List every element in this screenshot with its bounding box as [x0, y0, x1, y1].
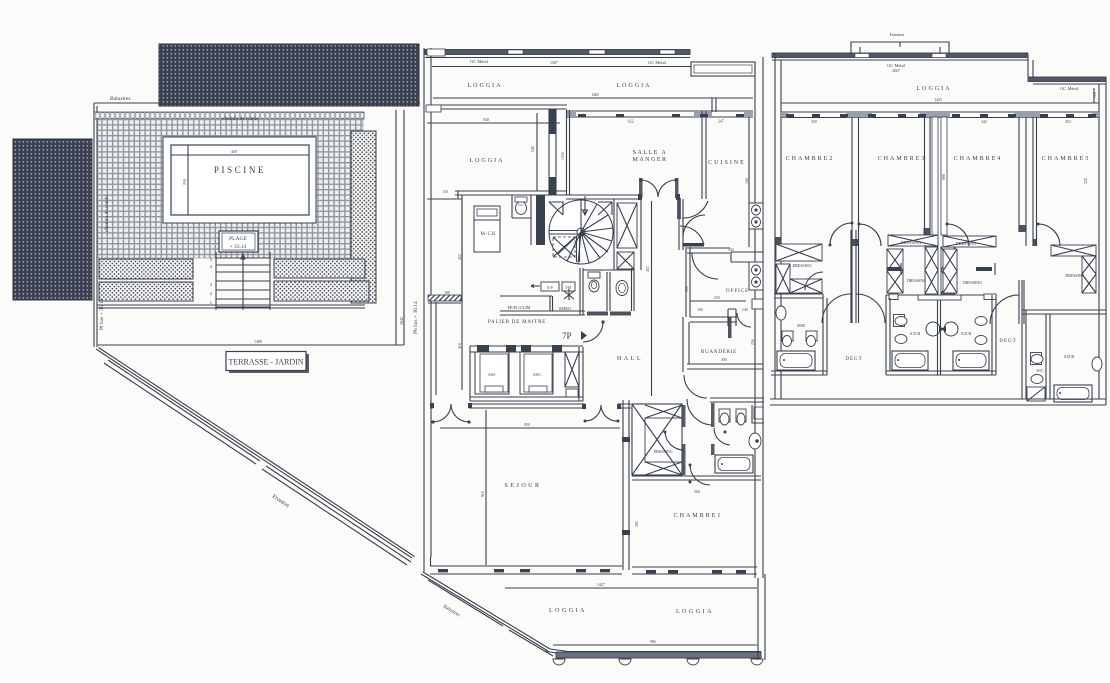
svg-text:LOGGIA: LOGGIA	[676, 609, 714, 615]
svg-text:110: 110	[442, 190, 448, 194]
svg-text:WC: WC	[518, 203, 524, 207]
svg-text:DEGT: DEGT	[999, 339, 1016, 344]
svg-text:2067: 2067	[892, 69, 900, 73]
svg-text:PISCINE: PISCINE	[214, 165, 266, 175]
svg-text:180: 180	[444, 291, 450, 295]
svg-text:OFFICE: OFFICE	[726, 289, 749, 294]
svg-text:400: 400	[231, 149, 237, 154]
svg-text:140: 140	[742, 308, 748, 312]
svg-text:Pb bas + 36.14: Pb bas + 36.14	[413, 301, 419, 334]
svg-text:chemin de ronde: chemin de ronde	[222, 116, 259, 122]
svg-text:ASC: ASC	[533, 372, 542, 377]
svg-text:250: 250	[714, 296, 720, 300]
svg-text:7P: 7P	[562, 331, 572, 341]
svg-text:1423: 1423	[934, 98, 942, 102]
svg-text:VH: VH	[565, 285, 571, 290]
svg-text:CHAMBRE1: CHAMBRE1	[674, 513, 723, 519]
svg-text:PALIER DE MAITRE: PALIER DE MAITRE	[488, 320, 546, 325]
svg-text:236: 236	[751, 339, 755, 345]
svg-text:540: 540	[531, 146, 535, 152]
svg-text:CHAMBRE2: CHAMBRE2	[786, 156, 835, 162]
svg-text:1942: 1942	[399, 317, 404, 325]
svg-text:350: 350	[811, 120, 817, 124]
svg-text:LOGGIA: LOGGIA	[917, 86, 952, 92]
svg-text:940: 940	[483, 118, 489, 122]
svg-text:S.D.B: S.D.B	[961, 331, 971, 336]
svg-text:DRESSING: DRESSING	[901, 240, 921, 245]
svg-text:247: 247	[718, 120, 724, 124]
svg-text:1489: 1489	[254, 339, 262, 344]
svg-text:A-F: A-F	[547, 285, 554, 290]
svg-text:Pt bas + 36.14: Pt bas + 36.14	[99, 298, 105, 330]
svg-text:DRESSING: DRESSING	[907, 279, 926, 283]
svg-text:533: 533	[685, 286, 689, 292]
svg-text:352: 352	[1065, 120, 1071, 124]
svg-text:DRESSING: DRESSING	[653, 450, 672, 454]
svg-text:SMEG: SMEG	[559, 306, 572, 311]
svg-text:986: 986	[650, 640, 656, 644]
svg-text:DRESSING: DRESSING	[956, 241, 976, 246]
svg-text:GC Métal: GC Métal	[887, 63, 906, 68]
svg-text:TERRASSE - JARDIN: TERRASSE - JARDIN	[228, 358, 303, 367]
svg-text:1465: 1465	[591, 93, 599, 97]
svg-text:300: 300	[721, 358, 727, 362]
svg-text:2: 2	[210, 291, 212, 296]
svg-text:PLAGE: PLAGE	[229, 236, 247, 242]
svg-text:CHAMBRE3: CHAMBRE3	[878, 156, 927, 162]
svg-text:250: 250	[182, 179, 187, 185]
svg-text:850: 850	[524, 423, 530, 427]
svg-text:+ 33.14: + 33.14	[230, 244, 247, 250]
svg-text:DRESSING: DRESSING	[1065, 274, 1084, 278]
svg-text:622: 622	[628, 120, 634, 124]
svg-text:898: 898	[942, 174, 946, 180]
svg-text:MANGER: MANGER	[632, 157, 667, 163]
svg-text:180: 180	[697, 308, 703, 312]
svg-text:320: 320	[1084, 178, 1088, 184]
svg-text:Fontaine: Fontaine	[890, 32, 905, 37]
svg-text:GC Métal: GC Métal	[470, 59, 489, 64]
svg-text:419: 419	[458, 343, 462, 349]
svg-text:GC Métal: GC Métal	[648, 60, 667, 65]
svg-text:DRESSING: DRESSING	[963, 281, 982, 285]
svg-text:DRESSING: DRESSING	[792, 264, 811, 268]
svg-text:HALL: HALL	[617, 356, 643, 362]
svg-text:GC Métal: GC Métal	[1060, 86, 1079, 91]
svg-text:916: 916	[481, 491, 485, 497]
svg-text:504: 504	[728, 248, 734, 252]
svg-text:LOGGIA: LOGGIA	[549, 608, 587, 614]
svg-text:1356: 1356	[561, 152, 565, 160]
svg-text:ASC: ASC	[488, 372, 497, 377]
svg-text:453: 453	[646, 266, 650, 272]
svg-text:Balustres: Balustres	[110, 96, 130, 102]
svg-text:452: 452	[458, 254, 462, 260]
svg-text:M-CH: M-CH	[480, 232, 495, 237]
svg-text:LOGGIA: LOGGIA	[470, 158, 505, 164]
svg-text:SG: SG	[537, 238, 541, 243]
svg-text:1307: 1307	[550, 61, 558, 65]
svg-text:SEJOUR: SEJOUR	[504, 483, 541, 489]
svg-text:chemin de ronde: chemin de ronde	[104, 195, 110, 232]
svg-text:104: 104	[745, 178, 749, 184]
svg-text:S.D.B: S.D.B	[910, 331, 920, 336]
svg-text:SALLE A: SALLE A	[633, 150, 668, 156]
svg-text:DEGT: DEGT	[845, 357, 862, 362]
svg-text:360: 360	[694, 490, 700, 494]
svg-text:S.D.B: S.D.B	[1064, 354, 1074, 359]
svg-text:342: 342	[981, 120, 987, 124]
svg-text:1427: 1427	[597, 583, 605, 587]
svg-text:W/C: W/C	[1036, 369, 1044, 373]
svg-text:1: 1	[210, 300, 212, 305]
svg-text:LOGGIA: LOGGIA	[468, 83, 503, 89]
svg-text:EP/EC/CLIM: EP/EC/CLIM	[507, 305, 530, 310]
svg-text:392: 392	[635, 521, 639, 527]
svg-text:SDB: SDB	[797, 323, 805, 328]
svg-text:CHAMBRE5: CHAMBRE5	[1042, 156, 1091, 162]
svg-text:CHAMBRE4: CHAMBRE4	[954, 156, 1003, 162]
svg-text:CUISINE: CUISINE	[708, 160, 746, 166]
svg-text:BUANDERIE: BUANDERIE	[701, 350, 737, 355]
svg-text:LOGGIA: LOGGIA	[617, 83, 652, 89]
